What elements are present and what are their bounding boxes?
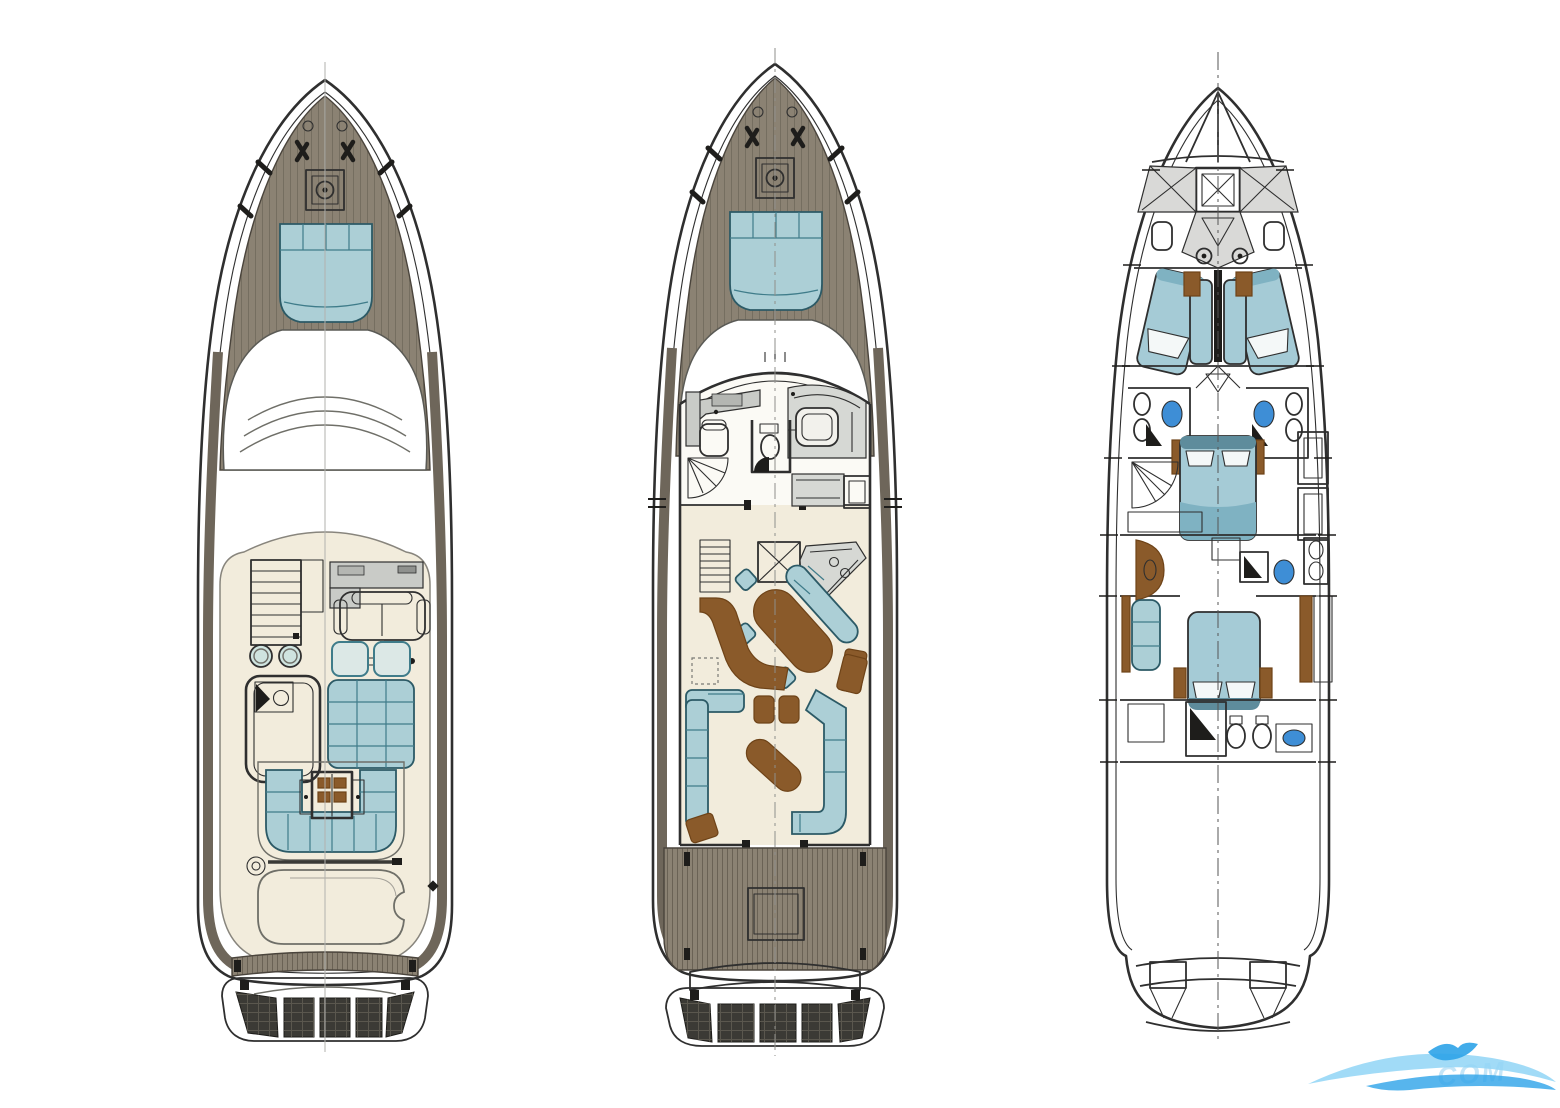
- cabinet: [1212, 538, 1240, 560]
- master-bed: [1188, 612, 1260, 710]
- master-sofa: [1132, 600, 1160, 670]
- mid-cabins: [1120, 535, 1328, 600]
- crew-nightstand: [1236, 272, 1252, 296]
- master-cabin: [1122, 596, 1332, 710]
- deck-plans-canvas: COM: [0, 0, 1560, 1108]
- crew-seat: [1152, 222, 1172, 250]
- flybridge-sunpad: [328, 680, 414, 768]
- crew-seat: [1264, 222, 1284, 250]
- toilet-icon: [1274, 560, 1294, 584]
- yacht-deck-plans-figure: COM: [0, 0, 1560, 1108]
- galley: [788, 385, 866, 458]
- main-deck-plan: [648, 48, 902, 1056]
- flybridge-deck-plan: [198, 62, 452, 1052]
- vip-cabin: [1172, 432, 1328, 540]
- bow-sunpad: [730, 212, 822, 310]
- toilet-icon: [1227, 724, 1245, 748]
- watermark: COM: [1308, 1043, 1556, 1092]
- lower-deck-plan: [1099, 52, 1337, 1044]
- crew-nightstand: [1184, 272, 1200, 296]
- mid-shower: [1240, 552, 1268, 582]
- toilet-icon: [1162, 401, 1182, 427]
- sink-icon: [1283, 730, 1305, 746]
- bow-sunpad: [280, 224, 372, 322]
- vanity: [1136, 540, 1164, 600]
- aft-sun-lounge: [258, 870, 404, 944]
- aft-shower: [1186, 702, 1226, 756]
- toilet-icon: [1253, 724, 1271, 748]
- toilet-icon: [1254, 401, 1274, 427]
